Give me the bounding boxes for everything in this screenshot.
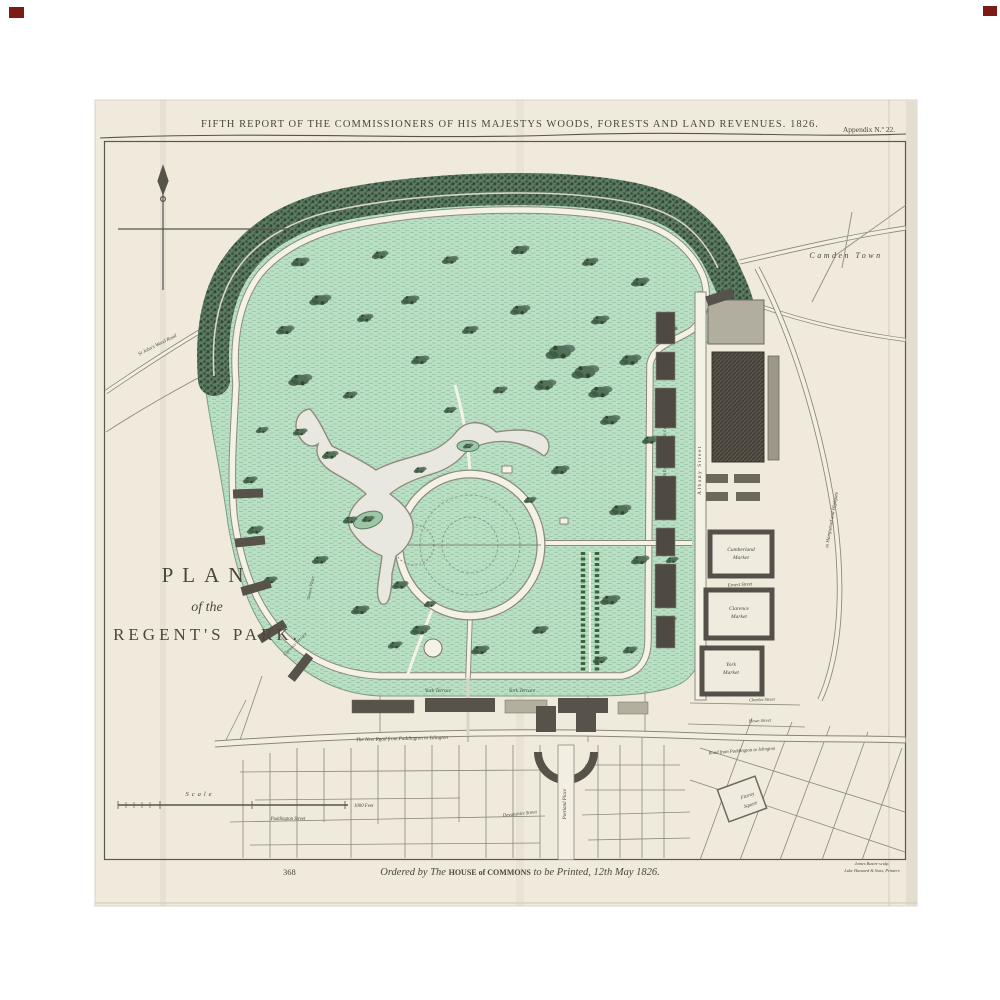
label-york-terrace-2: York Terrace: [509, 688, 536, 694]
map-title-line3: REGENT'S PARK.: [113, 625, 301, 644]
imprint-line: Ordered by The HOUSE of COMMONS to be Pr…: [380, 867, 659, 878]
map-title-line2: of the: [191, 600, 223, 615]
imprint-part3: to be Printed, 12th May 1826.: [533, 867, 659, 878]
label-cumberland-terrace: Cumberland Terrace: [663, 426, 668, 484]
scale-label: Scale: [185, 791, 214, 798]
imprint-part1: Ordered by The: [380, 867, 448, 878]
registration-mark-right: [983, 6, 997, 16]
label-york-market-2: Market: [722, 670, 739, 676]
map-title-line1: PLAN: [162, 563, 253, 587]
label-clarence-market-1: Clarence: [729, 606, 750, 612]
label-camden-town: Camden Town: [809, 251, 882, 260]
report-title: FIFTH REPORT OF THE COMMISSIONERS OF HIS…: [201, 119, 819, 130]
label-york-terrace-1: York Terrace: [425, 688, 452, 694]
label-paddington-street: Paddington Street: [270, 817, 306, 822]
sheet-number: 368: [283, 867, 296, 877]
engraver-credit-1: James Basire sculp.: [855, 861, 890, 866]
label-albany-street: Albany Street: [697, 445, 703, 495]
inner-circle: [394, 474, 541, 616]
label-cumberland-market-2: Market: [732, 555, 749, 561]
registration-mark-left: [9, 7, 24, 18]
label-cumberland-market-1: Cumberland: [727, 547, 755, 553]
imprint-part2: HOUSE of COMMONS: [449, 868, 532, 877]
scale-unit: 1000 Feet: [354, 804, 374, 809]
label-york-market-1: York: [726, 662, 736, 668]
label-charles-street: Charles Street: [749, 697, 776, 703]
scanned-map-page: FIFTH REPORT OF THE COMMISSIONERS OF HIS…: [0, 0, 1000, 1000]
label-howe-street: Howe Street: [748, 718, 772, 724]
label-clarence-market-2: Market: [730, 614, 747, 620]
appendix-note: Appendix N.º 22.: [843, 125, 895, 134]
label-portland-place: Portland Place: [563, 788, 568, 820]
